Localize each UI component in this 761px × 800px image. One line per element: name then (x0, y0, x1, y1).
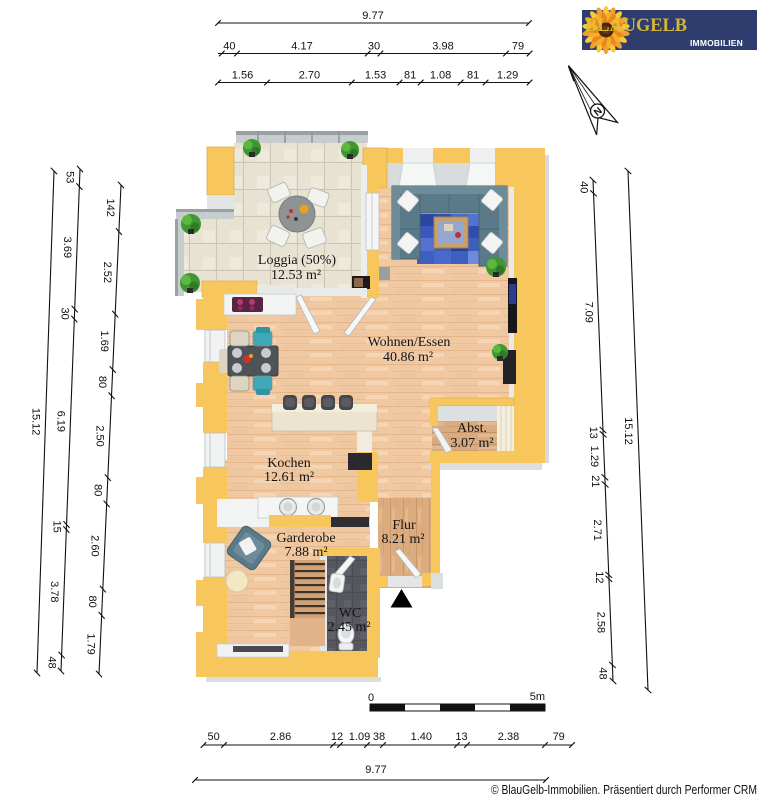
svg-text:30: 30 (368, 41, 380, 53)
svg-text:81: 81 (467, 70, 479, 82)
svg-text:4.17: 4.17 (291, 41, 312, 53)
svg-text:2.60: 2.60 (89, 535, 101, 556)
svg-text:1.69: 1.69 (98, 330, 110, 351)
svg-text:2.70: 2.70 (299, 70, 320, 82)
svg-text:13: 13 (455, 731, 467, 743)
svg-text:7.88 m²: 7.88 m² (284, 545, 327, 560)
svg-text:3.98: 3.98 (432, 41, 453, 53)
svg-text:IMMOBILIEN: IMMOBILIEN (690, 38, 743, 48)
svg-text:1.56: 1.56 (232, 70, 253, 82)
svg-text:5m: 5m (530, 691, 545, 703)
svg-text:2.71: 2.71 (591, 519, 603, 540)
svg-text:48: 48 (597, 667, 609, 679)
svg-text:12: 12 (593, 571, 605, 583)
svg-text:79: 79 (512, 41, 524, 53)
svg-text:40: 40 (577, 181, 589, 193)
svg-text:9.77: 9.77 (362, 10, 383, 22)
svg-text:Wohnen/Essen: Wohnen/Essen (368, 335, 451, 350)
svg-text:12.53 m²: 12.53 m² (271, 268, 321, 283)
svg-text:2.38: 2.38 (498, 731, 519, 743)
svg-text:79: 79 (553, 731, 565, 743)
svg-text:3.69: 3.69 (61, 237, 73, 258)
svg-text:48: 48 (45, 656, 57, 668)
svg-text:8.21 m²: 8.21 m² (381, 532, 424, 547)
svg-text:142: 142 (104, 199, 116, 217)
svg-text:2.52: 2.52 (101, 262, 113, 283)
svg-text:2.45 m²: 2.45 m² (327, 620, 370, 635)
svg-text:80: 80 (96, 376, 108, 388)
svg-text:Loggia (50%): Loggia (50%) (258, 253, 336, 268)
svg-text:0: 0 (368, 692, 374, 704)
svg-text:1.08: 1.08 (430, 70, 451, 82)
svg-text:21: 21 (589, 475, 601, 487)
svg-text:Flur: Flur (392, 518, 416, 533)
svg-text:1.53: 1.53 (365, 70, 386, 82)
svg-text:80: 80 (91, 484, 103, 496)
svg-text:7.09: 7.09 (582, 301, 594, 322)
svg-text:9.77: 9.77 (365, 764, 386, 776)
svg-text:12.61 m²: 12.61 m² (264, 470, 314, 485)
svg-text:BLAUGELB: BLAUGELB (585, 15, 687, 36)
svg-text:2.58: 2.58 (595, 612, 607, 633)
svg-text:1.40: 1.40 (411, 731, 432, 743)
svg-text:13: 13 (587, 427, 599, 439)
svg-text:1.79: 1.79 (84, 633, 96, 654)
svg-text:Kochen: Kochen (267, 456, 311, 471)
svg-text:1.09: 1.09 (349, 731, 370, 743)
svg-text:Abst.: Abst. (457, 421, 487, 436)
svg-text:80: 80 (86, 595, 98, 607)
svg-text:15.12: 15.12 (622, 417, 634, 445)
svg-text:© BlauGelb-Immobilien. Präsent: © BlauGelb-Immobilien. Präsentiert durch… (491, 783, 757, 797)
svg-text:Garderobe: Garderobe (276, 531, 335, 546)
svg-text:53: 53 (64, 171, 76, 183)
svg-text:15: 15 (51, 520, 63, 532)
svg-text:2.50: 2.50 (94, 425, 106, 446)
svg-text:15.12: 15.12 (30, 408, 42, 436)
svg-text:2.86: 2.86 (270, 731, 291, 743)
svg-text:38: 38 (373, 731, 385, 743)
svg-text:1.29: 1.29 (588, 446, 600, 467)
svg-text:12: 12 (331, 731, 343, 743)
svg-text:50: 50 (207, 731, 219, 743)
svg-text:81: 81 (404, 70, 416, 82)
svg-text:WC: WC (339, 606, 362, 621)
svg-text:3.07 m²: 3.07 m² (450, 436, 493, 451)
svg-text:6.19: 6.19 (54, 411, 66, 432)
svg-text:40.86 m²: 40.86 m² (383, 350, 433, 365)
svg-text:30: 30 (59, 307, 71, 319)
svg-text:1.29: 1.29 (497, 70, 518, 82)
svg-text:3.78: 3.78 (48, 581, 60, 602)
svg-text:40: 40 (223, 41, 235, 53)
